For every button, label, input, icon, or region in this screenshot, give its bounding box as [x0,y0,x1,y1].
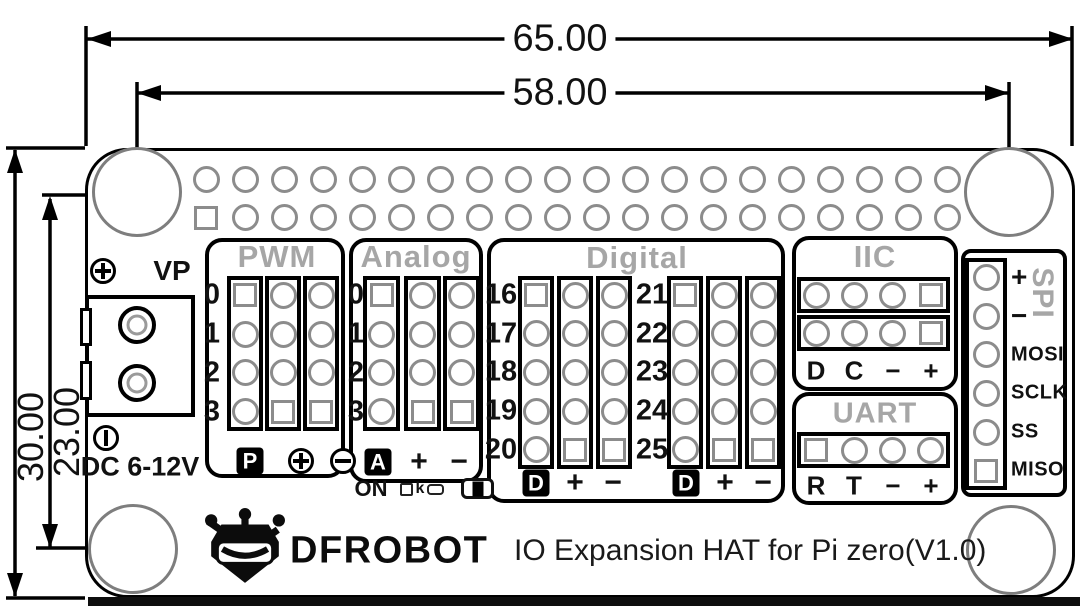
pin-pad-circle [672,320,699,347]
pin-pad-square [309,400,333,424]
pin-pad-circle [523,320,550,347]
pin-pad-circle [232,359,259,386]
pin-pad-circle [711,398,738,425]
pin-pad-circle [448,282,475,309]
pin-pad-circle [409,282,436,309]
pin-pad-circle [739,166,766,193]
pin-group-chip: D [673,470,700,497]
pin-pad-circle [562,320,589,347]
pin-pad-circle [672,436,699,463]
pin-label: 0 [204,279,220,312]
pin-label: − [450,445,468,479]
pin-pad-circle [700,166,727,193]
pin-label: C [845,356,864,387]
pin-pad-circle [778,166,805,193]
spi-pin-label: + [1011,261,1027,293]
pin-pad-square [919,283,943,307]
spi-pin-label: MISO [1011,459,1064,482]
pin-pad-circle [601,398,628,425]
pin-pad-square [411,400,435,424]
pin-label: − [754,466,772,500]
pin-pad-circle [562,282,589,309]
pin-label: 2 [204,357,220,390]
pin-pad-circle [270,359,297,386]
pin-pad-square [271,400,295,424]
pin-pad-square [712,438,736,462]
pin-pad-circle [505,166,532,193]
pin-pad-square [563,438,587,462]
pin-label: + [566,466,584,500]
pin-field: 0123P0123A+−1617181920D+−2122232425D+−DC… [0,0,1080,606]
pin-pad-circle [895,204,922,231]
pin-pad-circle [232,166,259,193]
spi-pin-label: − [1011,300,1027,332]
pin-group-chip: A [365,449,392,476]
pin-pad-circle [841,320,868,347]
pin-pad-circle [601,320,628,347]
pin-group-chip: D [523,470,550,497]
pin-pad-circle [841,437,868,464]
pin-pad-circle [750,359,777,386]
pin-pad-circle [778,204,805,231]
pin-pad-circle [505,204,532,231]
pin-pad-circle [750,320,777,347]
pin-pad-circle [672,359,699,386]
pin-label: 19 [485,395,517,428]
pin-pad-square [370,283,394,307]
pin-pad-circle [711,359,738,386]
pin-pad-square [602,438,626,462]
pin-label: + [410,445,428,479]
pin-pad-circle [544,166,571,193]
pin-pad-circle [523,436,550,463]
pin-label: 0 [348,279,364,312]
pin-pad-square [194,206,218,230]
pin-pad-square [751,438,775,462]
circle-minus-icon [330,448,356,474]
pin-pad-circle [841,282,868,309]
pin-label: T [846,471,862,502]
pin-label: 21 [636,279,668,312]
pin-label: 22 [636,318,668,351]
mechanical-drawing: 65.00 58.00 30.00 23.00 PWM Analog Digit… [0,0,1080,606]
pin-pad-square [919,321,943,345]
pin-label: 20 [485,434,517,467]
pin-pad-circle [466,166,493,193]
pin-pad-circle [523,398,550,425]
pin-strip [965,258,1007,490]
pin-pad-circle [879,437,906,464]
pin-pad-circle [803,282,830,309]
pin-pad-circle [310,204,337,231]
pin-pad-circle [544,204,571,231]
pin-pad-circle [700,204,727,231]
pin-pad-circle [232,321,259,348]
pin-label: 23 [636,356,668,389]
circle-plus-icon [288,448,314,474]
pin-pad-square [450,400,474,424]
pin-pad-circle [308,321,335,348]
pin-pad-circle [601,359,628,386]
pin-pad-circle [368,321,395,348]
pin-pad-circle [973,380,1000,407]
pin-pad-circle [711,282,738,309]
pin-label: + [923,356,938,387]
spi-pin-label: MOSI [1011,344,1064,367]
pin-pad-circle [562,359,589,386]
pin-pad-circle [427,204,454,231]
pin-pad-circle [271,204,298,231]
pin-pad-circle [349,166,376,193]
pin-label: 17 [485,318,517,351]
spi-pin-label: SS [1011,421,1039,444]
pin-pad-square [804,438,828,462]
pin-pad-circle [750,282,777,309]
pin-pad-circle [308,359,335,386]
pin-label: − [885,471,900,502]
pin-pad-circle [856,204,883,231]
pin-label: − [885,356,900,387]
pin-label: 1 [348,318,364,351]
pin-pad-circle [934,166,961,193]
pin-pad-circle [672,398,699,425]
pin-pad-circle [601,282,628,309]
pin-pad-circle [739,204,766,231]
pin-pad-square [673,283,697,307]
pin-pad-circle [310,166,337,193]
spi-pin-label: SCLK [1011,382,1067,405]
pin-pad-circle [368,398,395,425]
pin-pad-circle [388,204,415,231]
pin-label: 24 [636,395,668,428]
pin-pad-circle [349,204,376,231]
pin-pad-circle [934,204,961,231]
pin-pad-circle [973,419,1000,446]
pin-pad-circle [879,320,906,347]
pin-pad-square [974,459,998,483]
pin-pad-circle [523,359,550,386]
pin-label: 3 [204,396,220,429]
pin-pad-circle [427,166,454,193]
pin-pad-circle [661,166,688,193]
pin-label: 25 [636,434,668,467]
pin-label: R [807,471,826,502]
pin-pad-circle [856,166,883,193]
pin-pad-circle [466,204,493,231]
pin-pad-circle [973,341,1000,368]
pin-pad-circle [622,204,649,231]
pin-pad-circle [232,204,259,231]
pin-label: 18 [485,356,517,389]
pin-pad-circle [583,204,610,231]
pin-pad-circle [270,282,297,309]
pin-label: + [923,471,938,502]
pin-label: + [716,466,734,500]
pin-pad-circle [711,320,738,347]
pin-pad-circle [879,282,906,309]
pin-pad-circle [388,166,415,193]
pin-pad-circle [661,204,688,231]
pin-pad-circle [895,166,922,193]
pin-label: 3 [348,396,364,429]
pin-label: 16 [485,279,517,312]
pin-label: 1 [204,318,220,351]
pin-pad-circle [270,321,297,348]
pin-label: 2 [348,357,364,390]
pin-pad-square [524,283,548,307]
pin-pad-circle [817,166,844,193]
pin-group-chip: P [237,448,264,475]
pin-pad-square [233,283,257,307]
pin-pad-circle [973,303,1000,330]
pin-pad-circle [448,321,475,348]
pin-pad-circle [750,398,777,425]
pin-label: D [807,356,826,387]
pin-pad-circle [409,321,436,348]
pin-label: − [604,466,622,500]
pin-pad-circle [232,398,259,425]
pin-pad-circle [803,320,830,347]
pin-pad-circle [622,166,649,193]
pin-pad-circle [973,264,1000,291]
pin-pad-circle [917,437,944,464]
pin-pad-circle [562,398,589,425]
pin-pad-circle [817,204,844,231]
pin-pad-circle [271,166,298,193]
pin-pad-circle [193,166,220,193]
pin-pad-circle [308,282,335,309]
pin-pad-circle [583,166,610,193]
